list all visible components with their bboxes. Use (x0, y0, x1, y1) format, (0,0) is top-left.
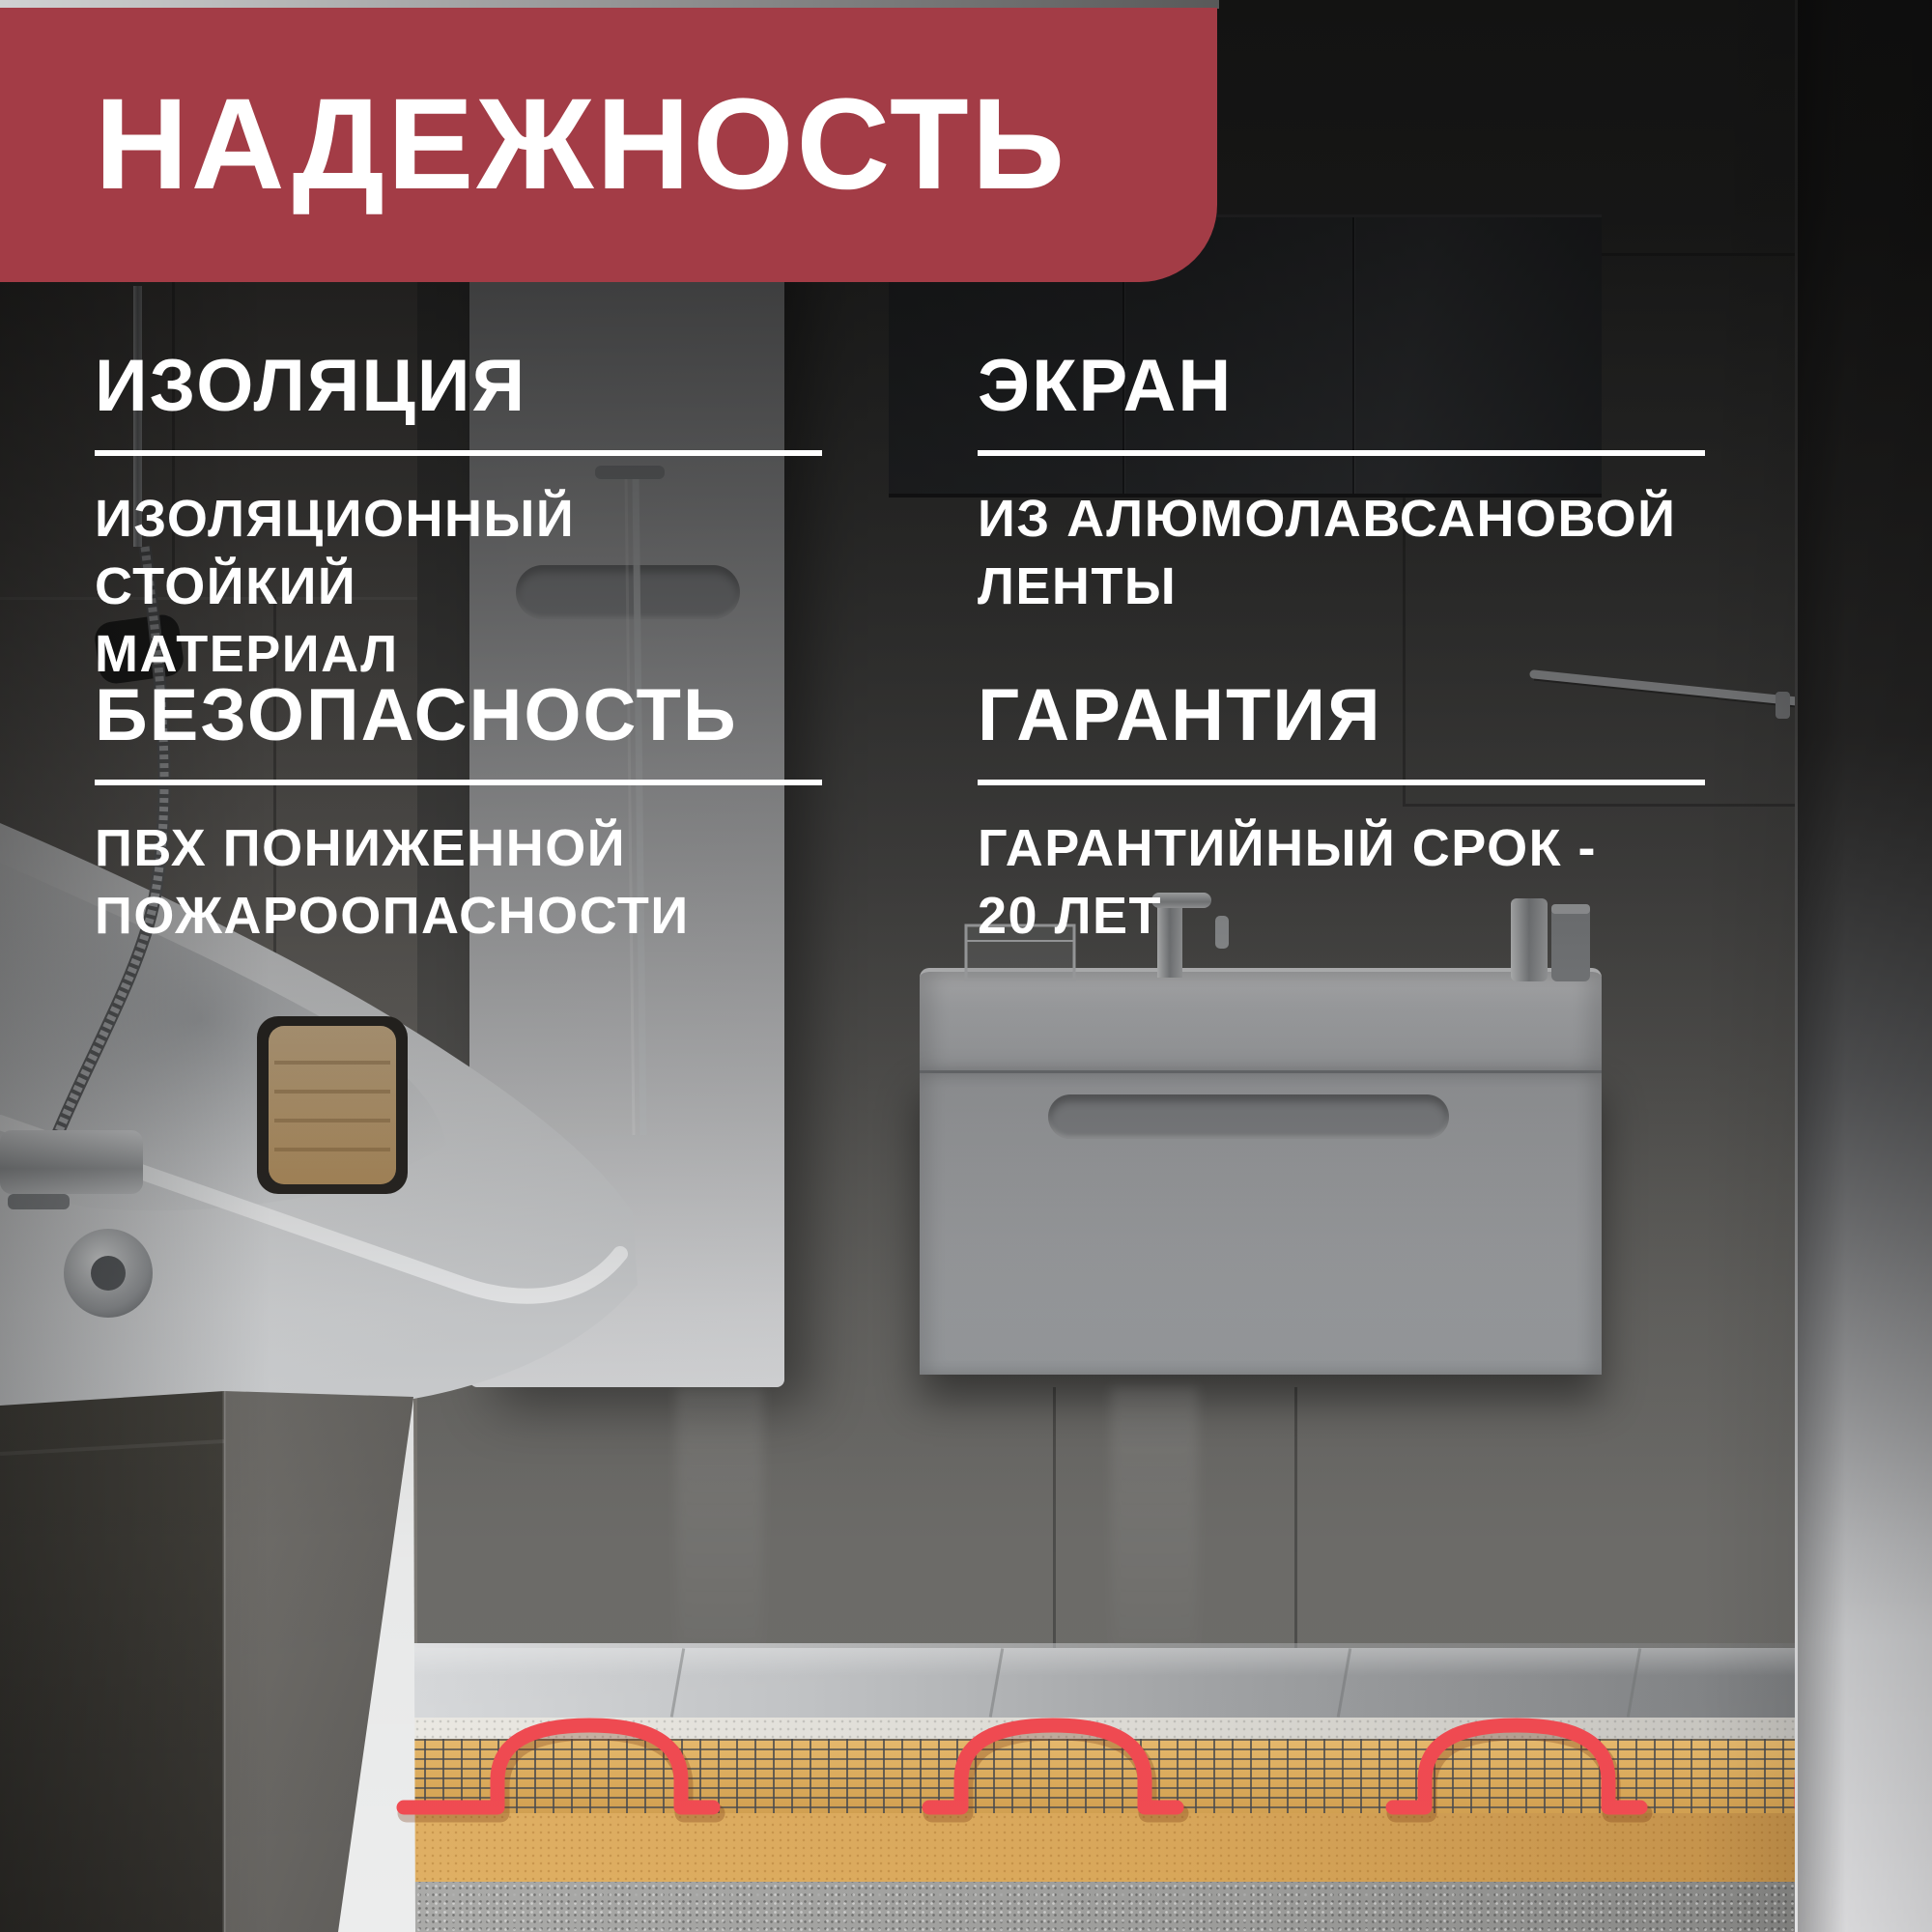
description-line: ИЗ АЛЮМОЛАВСАНОВОЙ (978, 485, 1721, 553)
description-line: 20 ЛЕТ (978, 882, 1721, 950)
feature-title: ЭКРАН (978, 350, 1721, 423)
description-line: ЛЕНТЫ (978, 553, 1721, 620)
feature-description: ПВХ ПОНИЖЕННОЙ ПОЖАРООПАСНОСТИ (95, 814, 838, 950)
feature-title: ГАРАНТИЯ (978, 679, 1721, 753)
feature-description: ИЗОЛЯЦИОННЫЙ СТОЙКИЙ МАТЕРИАЛ (95, 485, 838, 688)
feature-safety: БЕЗОПАСНОСТЬ ПВХ ПОНИЖЕННОЙ ПОЖАРООПАСНО… (95, 679, 838, 950)
bathtub-apron-front (0, 1391, 224, 1932)
description-line: ПВХ ПОНИЖЕННОЙ (95, 814, 838, 882)
page-title: НАДЕЖНОСТЬ (0, 80, 1067, 210)
description-line: ИЗОЛЯЦИОННЫЙ СТОЙКИЙ (95, 485, 838, 620)
feature-screen: ЭКРАН ИЗ АЛЮМОЛАВСАНОВОЙ ЛЕНТЫ (978, 350, 1721, 620)
door-panel (1795, 0, 1932, 1932)
heating-cable (404, 1725, 1867, 1813)
feature-divider (978, 450, 1705, 456)
feature-description: ИЗ АЛЮМОЛАВСАНОВОЙ ЛЕНТЫ (978, 485, 1721, 620)
feature-divider (95, 780, 822, 785)
feature-divider (95, 450, 822, 456)
wooden-stool (257, 1016, 408, 1194)
description-line: ПОЖАРООПАСНОСТИ (95, 882, 838, 950)
feature-description: ГАРАНТИЙНЫЙ СРОК - 20 ЛЕТ (978, 814, 1721, 950)
scene-details (0, 0, 1932, 1932)
feature-title: БЕЗОПАСНОСТЬ (95, 679, 838, 753)
feature-title: ИЗОЛЯЦИЯ (95, 350, 838, 423)
wall-mixer (0, 1130, 143, 1194)
description-line: ГАРАНТИЙНЫЙ СРОК - (978, 814, 1721, 882)
feature-warranty: ГАРАНТИЯ ГАРАНТИЙНЫЙ СРОК - 20 ЛЕТ (978, 679, 1721, 950)
feature-insulation: ИЗОЛЯЦИЯ ИЗОЛЯЦИОННЫЙ СТОЙКИЙ МАТЕРИАЛ (95, 350, 838, 688)
product-card: НАДЕЖНОСТЬ ИЗОЛЯЦИЯ ИЗОЛЯЦИОННЫЙ СТОЙКИЙ… (0, 0, 1932, 1932)
title-banner: НАДЕЖНОСТЬ (0, 8, 1217, 282)
feature-divider (978, 780, 1705, 785)
